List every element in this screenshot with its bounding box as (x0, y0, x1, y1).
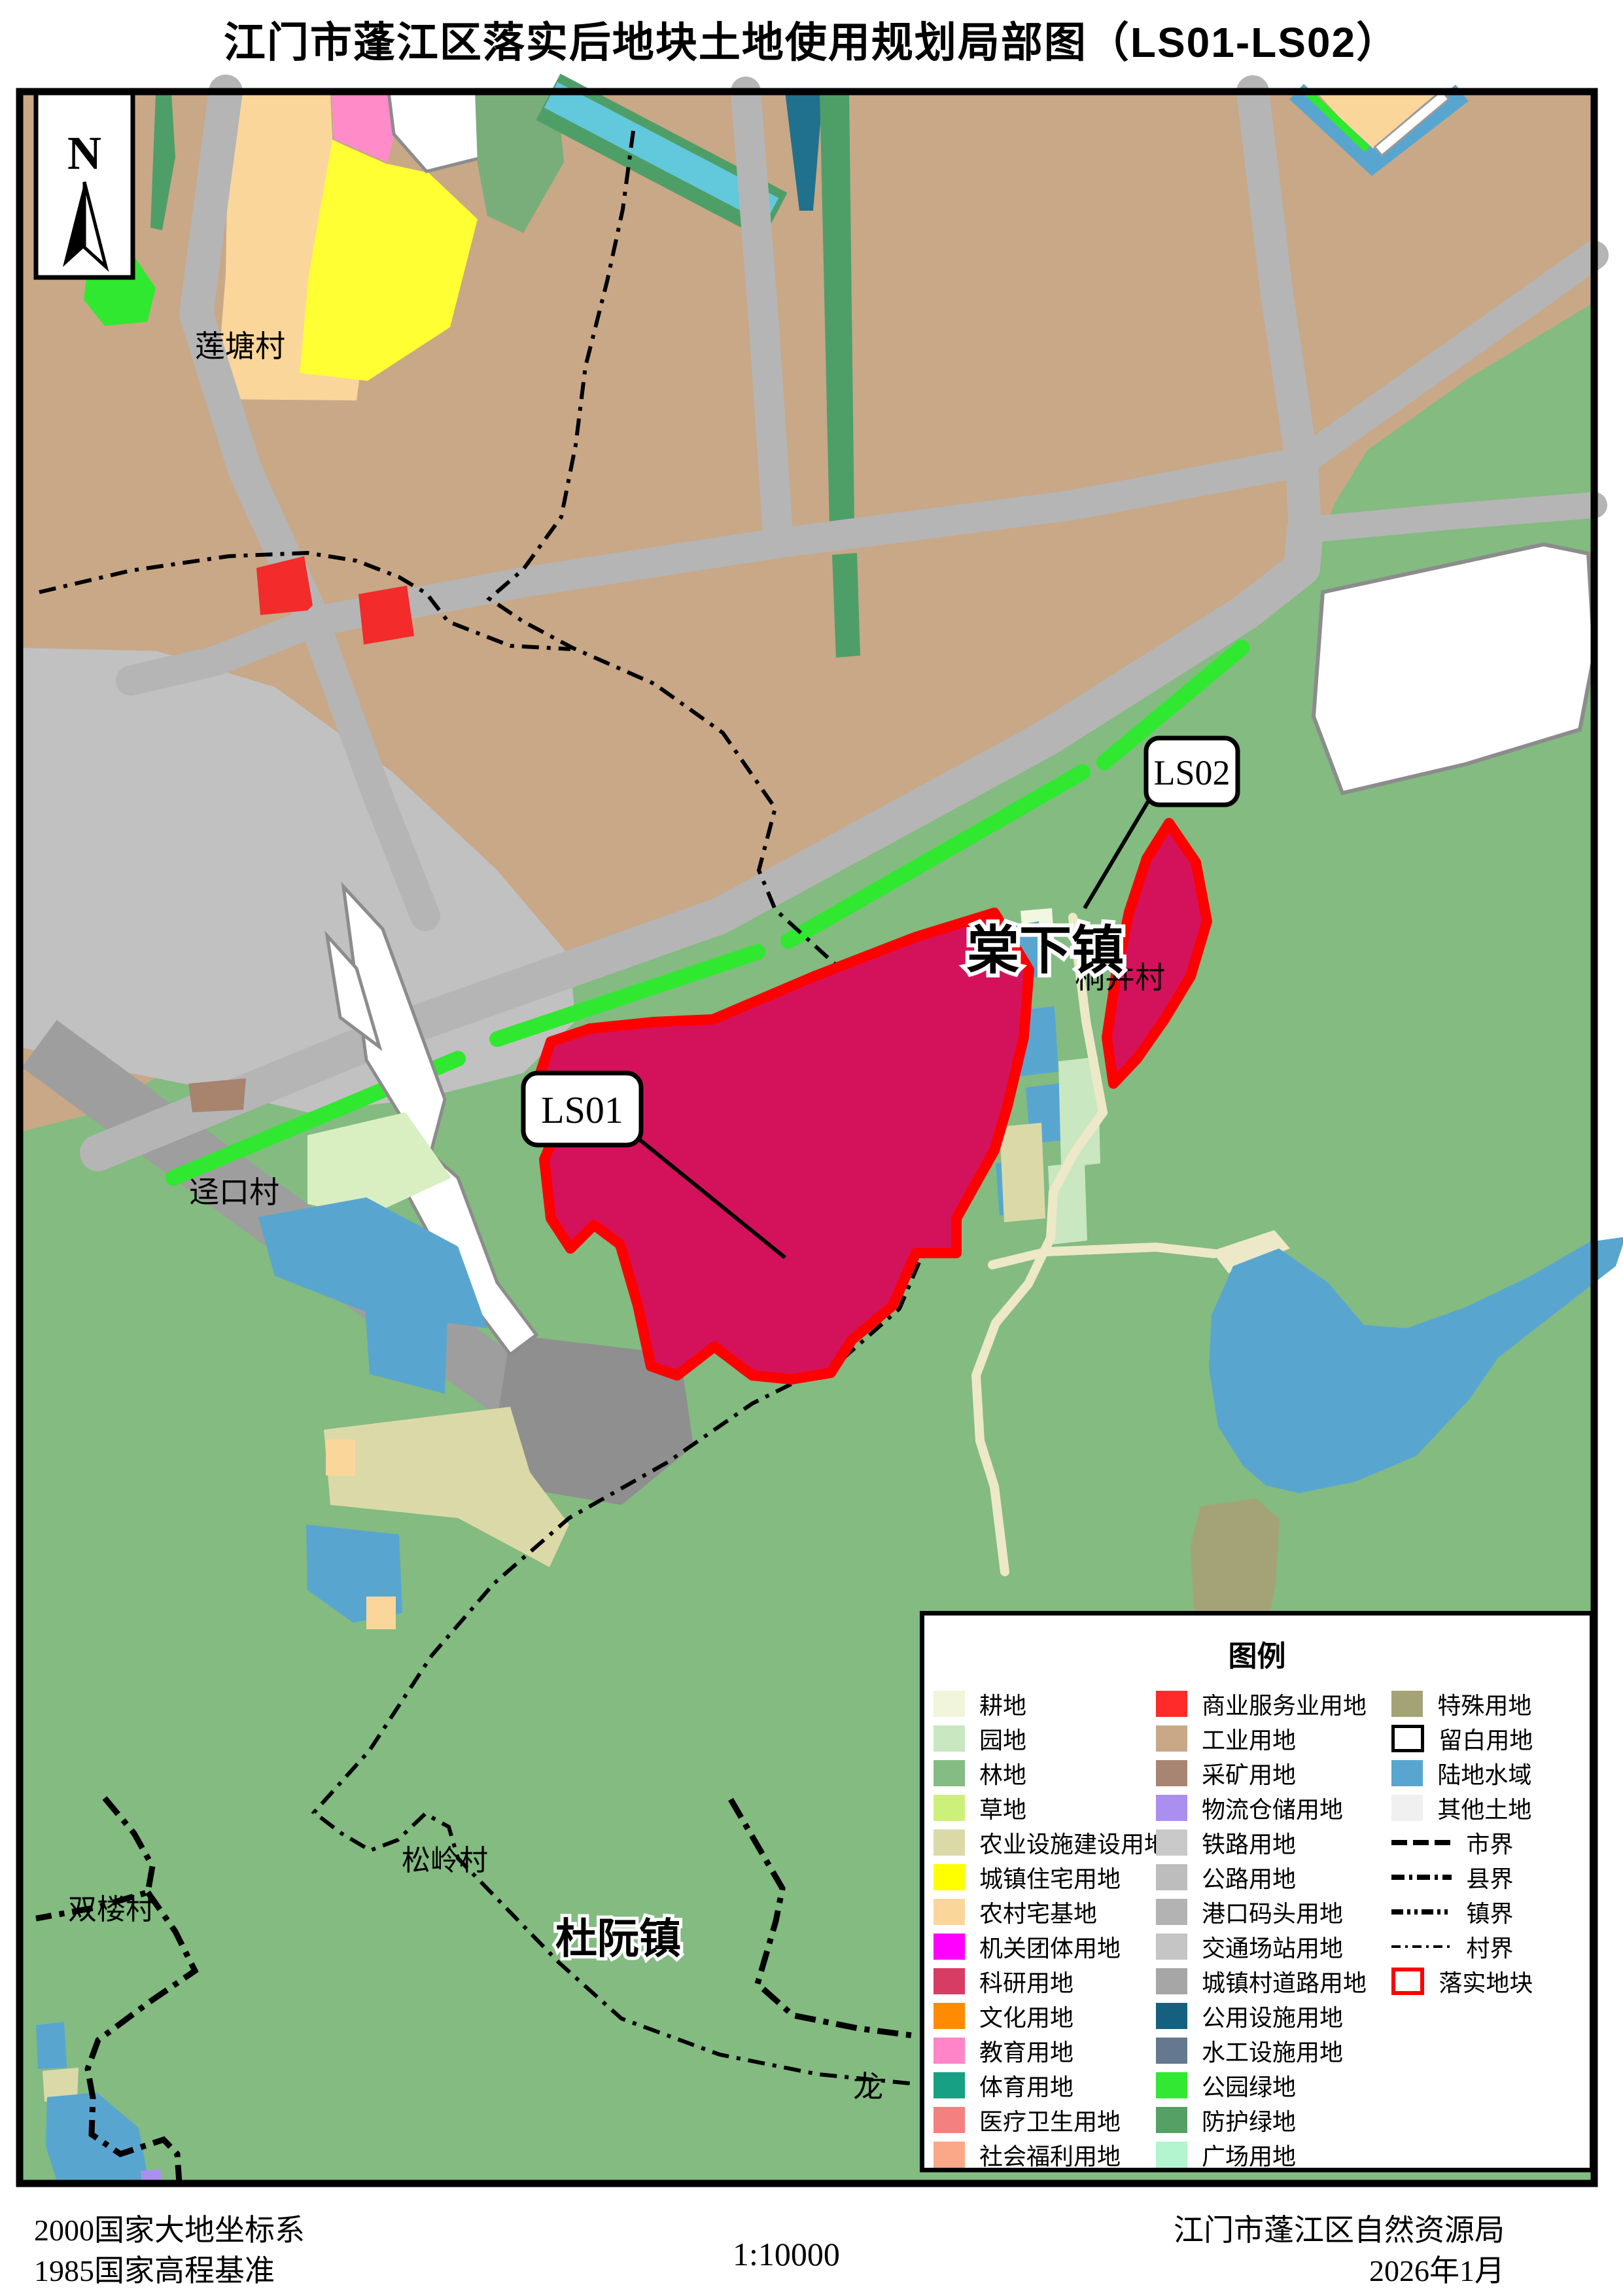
footer-agency: 江门市蓬江区自然资源局 (1174, 2210, 1505, 2251)
legend-item: 广场用地 (1156, 2137, 1391, 2172)
footer-height-datum: 1985国家高程基准 (34, 2251, 305, 2291)
legend-label: 交通场站用地 (1202, 1930, 1343, 1964)
legend-label: 机关团体用地 (979, 1930, 1121, 1964)
legend-label: 县界 (1466, 1860, 1513, 1894)
label-jingkou-village: 迳口村 (189, 1176, 279, 1209)
legend-label: 草地 (979, 1791, 1026, 1825)
label-tangxia-town: 棠下镇 (966, 923, 1124, 980)
label-long-village-partial: 龙 (853, 2070, 883, 2104)
planning-map-page: 江门市蓬江区落实后地块土地使用规划局部图（LS01-LS02） (0, 0, 1623, 2296)
legend-label: 公园绿地 (1202, 2068, 1296, 2102)
legend-item: 机关团体用地 (934, 1929, 1156, 1964)
legend-label: 陆地水域 (1437, 1756, 1531, 1790)
legend-swatch (1156, 1795, 1187, 1821)
legend-item: 商业服务业用地 (1156, 1686, 1391, 1721)
legend-item: 科研用地 (934, 1964, 1156, 1998)
legend-label: 农村宅基地 (979, 1895, 1097, 1929)
footer-agency-block: 江门市蓬江区自然资源局 2026年1月 (1174, 2210, 1505, 2291)
legend-item: 采矿用地 (1156, 1756, 1391, 1790)
legend-label: 采矿用地 (1202, 1756, 1296, 1790)
legend-label: 其他土地 (1437, 1791, 1531, 1825)
legend-swatch (1156, 1760, 1187, 1786)
legend-item: 镇界 (1391, 1894, 1580, 1929)
peach-bit-2 (366, 1597, 396, 1629)
legend-swatch (934, 1760, 965, 1786)
legend-swatch (934, 2107, 965, 2133)
legend-line-swatch (1391, 1941, 1452, 1952)
legend-item: 港口码头用地 (1156, 1894, 1391, 1929)
legend-swatch (1156, 1968, 1187, 1994)
legend-swatch (934, 2003, 965, 2029)
legend-item: 公路用地 (1156, 1860, 1391, 1894)
legend-label: 社会福利用地 (979, 2138, 1121, 2172)
legend-swatch (1156, 1829, 1187, 1856)
map-scale: 1:10000 (733, 2235, 840, 2273)
legend-item: 工业用地 (1156, 1721, 1391, 1756)
legend-swatch (934, 1899, 965, 1925)
legend-line-swatch (1391, 1872, 1452, 1882)
legend-swatch (1156, 2072, 1187, 2098)
legend-swatch (1391, 1760, 1423, 1786)
legend-item: 留白用地 (1391, 1721, 1580, 1756)
legend-label: 城镇村道路用地 (1202, 1964, 1367, 1998)
callout-ls02[interactable]: LS02 (1146, 738, 1238, 805)
legend-swatch (1156, 2003, 1187, 2029)
label-duruan-town: 杜阮镇 (555, 1916, 681, 1962)
label-shuanglou-village: 双楼村 (68, 1894, 154, 1926)
legend-item: 铁路用地 (1156, 1825, 1391, 1860)
legend-item: 落实地块 (1391, 1964, 1580, 1998)
legend-item: 其他土地 (1391, 1790, 1580, 1825)
legend-label: 落实地块 (1439, 1964, 1533, 1998)
legend-label: 镇界 (1466, 1895, 1513, 1929)
legend-label: 耕地 (979, 1687, 1026, 1721)
legend-item: 文化用地 (934, 1998, 1156, 2033)
legend-label: 城镇住宅用地 (979, 1860, 1121, 1894)
legend-label: 广场用地 (1202, 2138, 1296, 2172)
ls02-callout-label: LS02 (1153, 753, 1230, 792)
legend-label: 体育用地 (979, 2068, 1073, 2102)
legend-swatch (934, 2142, 965, 2168)
legend-swatch (934, 1795, 965, 1821)
legend-swatch (934, 1691, 965, 1717)
legend-label: 留白用地 (1439, 1722, 1533, 1756)
legend-label: 工业用地 (1202, 1722, 1296, 1756)
legend-swatch (1391, 1968, 1424, 1995)
legend-item: 医疗卫生用地 (934, 2102, 1156, 2137)
footer-coordinate-system: 2000国家大地坐标系 (34, 2210, 305, 2251)
legend-column-2: 商业服务业用地工业用地采矿用地物流仓储用地铁路用地公路用地港口码头用地交通场站用… (1156, 1686, 1391, 2172)
north-arrow: N (36, 93, 133, 277)
legend-line-swatch (1391, 1907, 1452, 1917)
legend-title: 图例 (924, 1633, 1590, 1674)
legend-label: 教育用地 (979, 2034, 1073, 2068)
legend-item: 陆地水域 (1391, 1756, 1580, 1790)
legend-label: 商业服务业用地 (1202, 1687, 1367, 1721)
legend-label: 村界 (1466, 1930, 1513, 1964)
legend-item: 城镇住宅用地 (934, 1860, 1156, 1894)
legend-item: 城镇村道路用地 (1156, 1964, 1391, 1998)
legend-item: 教育用地 (934, 2033, 1156, 2068)
legend-swatch (934, 2072, 965, 2098)
legend-swatch (1156, 1934, 1187, 1960)
parcel-commercial-2 (358, 586, 414, 645)
legend-label: 防护绿地 (1202, 2103, 1296, 2137)
legend-label: 林地 (979, 1756, 1026, 1790)
legend-swatch (1391, 1725, 1424, 1752)
legend-swatch (1156, 1899, 1187, 1925)
legend-columns: 耕地园地林地草地农业设施建设用地城镇住宅用地农村宅基地机关团体用地科研用地文化用… (924, 1686, 1590, 2172)
legend-item: 市界 (1391, 1825, 1580, 1860)
legend-label: 水工设施用地 (1202, 2034, 1343, 2068)
legend-label: 园地 (979, 1722, 1026, 1756)
legend-swatch (934, 1725, 965, 1752)
legend-column-3: 特殊用地留白用地陆地水域其他土地市界县界镇界村界落实地块 (1391, 1686, 1580, 2172)
legend-swatch (934, 1934, 965, 1960)
label-liantang-village: 莲塘村 (195, 330, 285, 363)
region-shelter-vertical-2 (832, 553, 860, 658)
legend-label: 市界 (1466, 1826, 1513, 1860)
legend-swatch (934, 1968, 965, 1994)
legend-swatch (1391, 1691, 1423, 1717)
legend-label: 物流仓储用地 (1202, 1791, 1343, 1825)
label-songling-village: 松岭村 (402, 1845, 488, 1877)
region-mining-patch (188, 1078, 246, 1112)
legend-item: 体育用地 (934, 2068, 1156, 2102)
legend-label: 农业设施建设用地 (979, 1826, 1168, 1860)
corridor-agri (1000, 1123, 1045, 1222)
legend-label: 港口码头用地 (1202, 1895, 1343, 1929)
footer-date: 2026年1月 (1174, 2251, 1505, 2291)
legend-label: 特殊用地 (1437, 1687, 1531, 1721)
legend-label: 文化用地 (979, 1999, 1073, 2033)
legend-item: 农村宅基地 (934, 1894, 1156, 1929)
legend-item: 公用设施用地 (1156, 1998, 1391, 2033)
legend-swatch (934, 1829, 965, 1856)
legend-item: 社会福利用地 (934, 2137, 1156, 2172)
legend-swatch (1156, 1864, 1187, 1890)
peach-bit-1 (326, 1439, 355, 1475)
legend-label: 公路用地 (1202, 1860, 1296, 1894)
legend-swatch (1156, 2142, 1187, 2168)
north-label: N (67, 127, 101, 179)
legend-item: 特殊用地 (1391, 1686, 1580, 1721)
legend-item: 防护绿地 (1156, 2102, 1391, 2137)
legend-label: 铁路用地 (1202, 1826, 1296, 1860)
legend-item: 水工设施用地 (1156, 2033, 1391, 2068)
legend-swatch (1156, 2038, 1187, 2064)
legend-swatch (1156, 1725, 1187, 1752)
legend-item: 草地 (934, 1790, 1156, 1825)
legend-item: 村界 (1391, 1929, 1580, 1964)
footer-datum: 2000国家大地坐标系 1985国家高程基准 (34, 2210, 305, 2291)
ls01-callout-label: LS01 (541, 1089, 623, 1131)
legend-swatch (1156, 1691, 1187, 1717)
legend-item: 农业设施建设用地 (934, 1825, 1156, 1860)
legend-swatch (1156, 2107, 1187, 2133)
legend-swatch (1391, 1795, 1423, 1821)
legend-column-1: 耕地园地林地草地农业设施建设用地城镇住宅用地农村宅基地机关团体用地科研用地文化用… (934, 1686, 1156, 2172)
legend: 图例 耕地园地林地草地农业设施建设用地城镇住宅用地农村宅基地机关团体用地科研用地… (920, 1611, 1594, 2172)
legend-item: 公园绿地 (1156, 2068, 1391, 2102)
legend-swatch (934, 1864, 965, 1890)
pond-bl-1 (36, 2022, 67, 2069)
callout-ls01[interactable]: LS01 (523, 1073, 641, 1145)
legend-item: 耕地 (934, 1686, 1156, 1721)
legend-item: 园地 (934, 1721, 1156, 1756)
legend-swatch (934, 2038, 965, 2064)
legend-label: 科研用地 (979, 1964, 1073, 1998)
legend-line-swatch (1391, 1837, 1452, 1848)
legend-label: 医疗卫生用地 (979, 2103, 1121, 2137)
legend-item: 林地 (934, 1756, 1156, 1790)
legend-item: 物流仓储用地 (1156, 1790, 1391, 1825)
legend-item: 县界 (1391, 1860, 1580, 1894)
legend-label: 公用设施用地 (1202, 1999, 1343, 2033)
legend-item: 交通场站用地 (1156, 1929, 1391, 1964)
